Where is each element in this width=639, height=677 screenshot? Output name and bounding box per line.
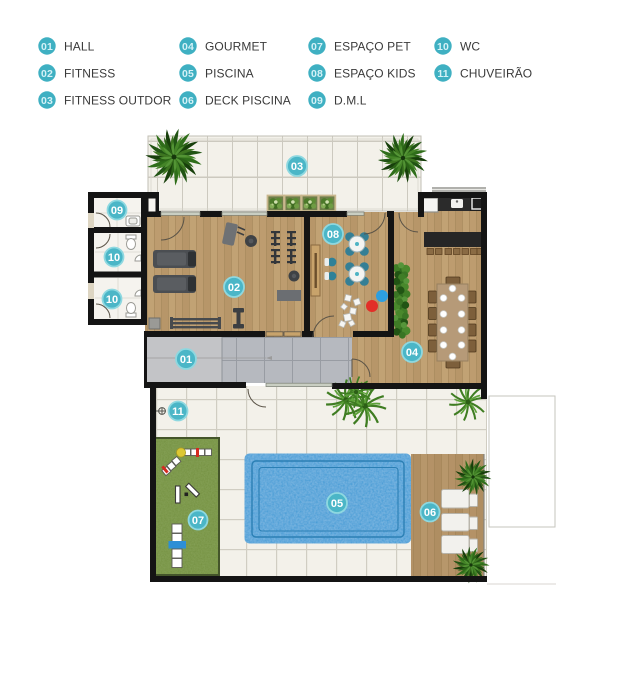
svg-text:04: 04 — [182, 41, 194, 53]
svg-text:11: 11 — [172, 406, 184, 418]
svg-text:01: 01 — [41, 41, 53, 53]
svg-text:05: 05 — [182, 68, 194, 80]
svg-text:04: 04 — [406, 347, 419, 359]
svg-text:FITNESS: FITNESS — [64, 67, 115, 81]
svg-text:10: 10 — [108, 252, 120, 264]
svg-text:09: 09 — [311, 95, 323, 107]
svg-text:08: 08 — [311, 68, 323, 80]
svg-text:06: 06 — [182, 95, 194, 107]
svg-text:09: 09 — [111, 205, 123, 217]
svg-text:10: 10 — [106, 294, 118, 306]
svg-text:08: 08 — [327, 229, 339, 241]
svg-text:03: 03 — [41, 95, 53, 107]
svg-text:GOURMET: GOURMET — [205, 40, 268, 54]
svg-text:CHUVEIRÃO: CHUVEIRÃO — [460, 67, 532, 81]
svg-text:ESPAÇO PET: ESPAÇO PET — [334, 40, 411, 54]
svg-text:PISCINA: PISCINA — [205, 67, 254, 81]
svg-text:11: 11 — [437, 68, 448, 80]
svg-text:HALL: HALL — [64, 40, 95, 54]
svg-text:05: 05 — [331, 498, 343, 510]
svg-text:01: 01 — [180, 354, 192, 366]
svg-text:WC: WC — [460, 40, 480, 54]
svg-text:FITNESS OUTDOR: FITNESS OUTDOR — [64, 94, 172, 108]
svg-text:07: 07 — [192, 515, 204, 527]
svg-text:03: 03 — [291, 161, 303, 173]
svg-text:06: 06 — [424, 507, 436, 519]
svg-text:10: 10 — [437, 41, 449, 53]
svg-text:02: 02 — [41, 68, 53, 80]
svg-text:ESPAÇO KIDS: ESPAÇO KIDS — [334, 67, 416, 81]
svg-text:07: 07 — [311, 41, 323, 53]
svg-text:DECK PISCINA: DECK PISCINA — [205, 94, 291, 108]
svg-text:02: 02 — [228, 282, 240, 294]
svg-text:D.M.L: D.M.L — [334, 94, 367, 108]
